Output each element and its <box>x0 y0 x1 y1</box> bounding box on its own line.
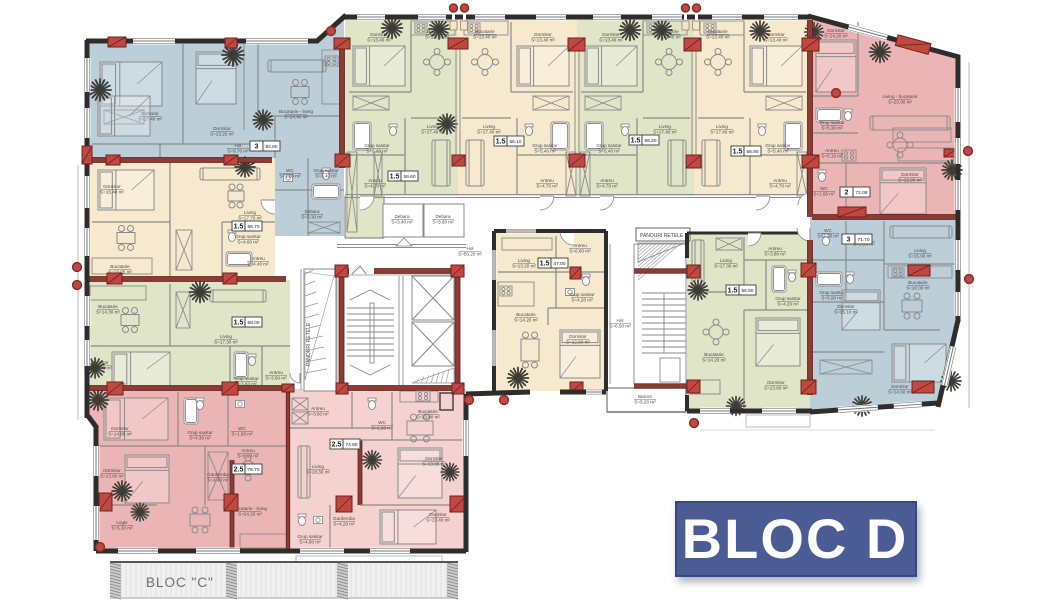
svg-text:Bucatarie - living: Bucatarie - living <box>279 109 313 114</box>
svg-text:S=6.80 m²: S=6.80 m² <box>569 249 591 254</box>
svg-text:S=14.20 m²: S=14.20 m² <box>514 318 538 323</box>
svg-text:56.20: 56.20 <box>644 138 656 144</box>
svg-text:S=14.20 m²: S=14.20 m² <box>824 34 848 39</box>
svg-text:S=1.90 m²: S=1.90 m² <box>231 432 253 437</box>
svg-text:S=4.70 m²: S=4.70 m² <box>596 184 618 189</box>
svg-text:S=17.30 m²: S=17.30 m² <box>714 264 738 269</box>
svg-text:Dormitor: Dormitor <box>767 32 785 37</box>
svg-text:Living - bucatarie: Living - bucatarie <box>883 94 918 99</box>
svg-text:1.5: 1.5 <box>733 149 743 156</box>
svg-text:Antreu: Antreu <box>600 178 614 183</box>
svg-text:S=13.40 m²: S=13.40 m² <box>599 38 623 43</box>
svg-text:Grup sanitar: Grup sanitar <box>765 143 791 148</box>
svg-text:Dormitor: Dormitor <box>569 334 587 339</box>
svg-text:Bucatarie: Bucatarie <box>98 304 118 309</box>
svg-text:Living: Living <box>720 258 732 263</box>
svg-text:Grup sanitar: Grup sanitar <box>819 290 845 295</box>
svg-text:S=5.40 m²: S=5.40 m² <box>534 149 556 154</box>
svg-text:S=5.40 m²: S=5.40 m² <box>366 149 388 154</box>
svg-text:Bucatarie: Bucatarie <box>475 29 495 34</box>
svg-text:S=3.60 m²: S=3.60 m² <box>265 376 287 381</box>
svg-text:S=12.50 m²: S=12.50 m² <box>566 340 590 345</box>
svg-text:S=4.60 m²: S=4.60 m² <box>237 240 259 245</box>
svg-text:S=5.40 m²: S=5.40 m² <box>598 149 620 154</box>
svg-text:Debara: Debara <box>394 214 410 219</box>
svg-text:Grup sanitar: Grup sanitar <box>297 534 323 539</box>
svg-text:S=1.60 m²: S=1.60 m² <box>813 192 835 197</box>
svg-text:S=13.40 m²: S=13.40 m² <box>367 38 391 43</box>
svg-text:S=6.50 m²: S=6.50 m² <box>609 324 631 329</box>
svg-text:Dormitor: Dormitor <box>213 126 231 131</box>
svg-text:Antreu: Antreu <box>251 256 265 261</box>
svg-text:S=4.40 m²: S=4.40 m² <box>247 262 269 267</box>
svg-text:1.5: 1.5 <box>496 139 506 146</box>
svg-text:Dormitor: Dormitor <box>111 426 129 431</box>
svg-text:S=13.80 m²: S=13.80 m² <box>422 462 446 467</box>
svg-text:Garderoba: Garderoba <box>333 516 355 521</box>
svg-text:S=3.40 m²: S=3.40 m² <box>391 220 413 225</box>
svg-text:Grup sanitar: Grup sanitar <box>233 376 259 381</box>
svg-text:1.5: 1.5 <box>234 320 244 327</box>
svg-text:Hol: Hol <box>467 246 474 251</box>
svg-text:S=18.30 m²: S=18.30 m² <box>306 470 330 475</box>
svg-text:Bucatarie: Bucatarie <box>908 280 928 285</box>
svg-text:2: 2 <box>845 190 849 197</box>
svg-text:Bucatarie: Bucatarie <box>418 409 438 414</box>
svg-text:S=13.40 m²: S=13.40 m² <box>531 38 555 43</box>
svg-text:Dormitor: Dormitor <box>602 32 620 37</box>
svg-text:Dormitor: Dormitor <box>103 468 121 473</box>
svg-text:Living: Living <box>483 124 495 129</box>
svg-text:47.00: 47.00 <box>553 261 565 267</box>
svg-text:3: 3 <box>255 144 259 151</box>
svg-text:56.90: 56.90 <box>746 149 758 155</box>
svg-text:S=4.30 m²: S=4.30 m² <box>189 436 211 441</box>
svg-text:Hol: Hol <box>235 143 242 148</box>
svg-text:Grup sanitar: Grup sanitar <box>187 430 213 435</box>
svg-text:S=56.20 m²: S=56.20 m² <box>458 252 482 257</box>
svg-text:S=4.40 m²: S=4.40 m² <box>207 478 229 483</box>
svg-text:S=15.90 m²: S=15.90 m² <box>908 254 932 259</box>
svg-text:Debara: Debara <box>435 214 451 219</box>
svg-text:Grup sanitar: Grup sanitar <box>532 143 558 148</box>
svg-text:Antreu: Antreu <box>768 246 782 251</box>
svg-text:S=17.30 m²: S=17.30 m² <box>214 340 238 345</box>
svg-text:Dormitor: Dormitor <box>103 184 121 189</box>
svg-text:S=3.80 m²: S=3.80 m² <box>307 412 329 417</box>
svg-text:1.5: 1.5 <box>631 138 641 145</box>
svg-text:S=5.30 m²: S=5.30 m² <box>111 526 133 531</box>
svg-text:S=13.60 m²: S=13.60 m² <box>764 386 788 391</box>
svg-text:S=2.20 m²: S=2.20 m² <box>817 234 839 239</box>
svg-text:Living: Living <box>716 124 728 129</box>
svg-text:Balcon: Balcon <box>638 394 652 399</box>
svg-text:92.80: 92.80 <box>265 144 277 150</box>
svg-text:Grup sanitar: Grup sanitar <box>775 296 801 301</box>
svg-text:S=13.40 m²: S=13.40 m² <box>706 35 730 40</box>
svg-text:S=14.80 m²: S=14.80 m² <box>108 432 132 437</box>
svg-text:WC: WC <box>378 420 386 425</box>
svg-text:S=5.10 m²: S=5.10 m² <box>821 154 843 159</box>
svg-text:S=20.90 m²: S=20.90 m² <box>888 100 912 105</box>
svg-text:BLOC "C": BLOC "C" <box>146 575 214 590</box>
svg-text:S=3.30 m²: S=3.30 m² <box>301 215 323 220</box>
svg-text:71.70: 71.70 <box>857 237 869 243</box>
svg-text:S=14.20 m²: S=14.20 m² <box>702 358 726 363</box>
svg-text:Dormitor: Dormitor <box>901 172 919 177</box>
svg-text:S=5.40 m²: S=5.40 m² <box>767 149 789 154</box>
svg-text:Grup sanitar: Grup sanitar <box>364 143 390 148</box>
svg-text:S=24.40 m²: S=24.40 m² <box>284 115 308 120</box>
svg-text:S=4.80 m²: S=4.80 m² <box>299 540 321 545</box>
svg-text:S=15.10 m²: S=15.10 m² <box>834 310 858 315</box>
svg-text:S=4.20 m²: S=4.20 m² <box>571 298 593 303</box>
svg-text:Grup sanitar: Grup sanitar <box>569 292 595 297</box>
svg-text:S=4.20 m²: S=4.20 m² <box>777 302 799 307</box>
svg-text:Antreu: Antreu <box>773 178 787 183</box>
svg-text:S=24.20 m²: S=24.20 m² <box>238 512 262 517</box>
svg-text:Dormitor: Dormitor <box>891 384 909 389</box>
svg-text:WC: WC <box>238 426 246 431</box>
svg-text:56.10: 56.10 <box>509 139 521 145</box>
svg-text:S=4.70 m²: S=4.70 m² <box>536 184 558 189</box>
svg-text:Antreu: Antreu <box>825 148 839 153</box>
svg-text:Bucatarie: Bucatarie <box>704 352 724 357</box>
svg-text:S=5.20 m²: S=5.20 m² <box>634 400 656 405</box>
svg-text:S=13.90 m²: S=13.90 m² <box>898 178 922 183</box>
svg-text:S=13.60 m²: S=13.60 m² <box>100 474 124 479</box>
svg-text:Garderoba: Garderoba <box>207 472 229 477</box>
svg-text:S=4.20 m²: S=4.20 m² <box>333 522 355 527</box>
svg-text:Living: Living <box>914 248 926 253</box>
svg-text:S=1.80 m²: S=1.80 m² <box>279 174 301 179</box>
svg-text:74.80: 74.80 <box>345 442 357 448</box>
svg-text:Grup sanitar: Grup sanitar <box>819 120 845 125</box>
svg-text:58.00: 58.00 <box>247 320 259 326</box>
svg-text:56.50: 56.50 <box>741 288 753 294</box>
svg-text:S=1.60 m²: S=1.60 m² <box>371 426 393 431</box>
svg-text:S=3.80 m²: S=3.80 m² <box>764 252 786 257</box>
svg-text:Bucatarie: Bucatarie <box>110 264 130 269</box>
svg-text:Living: Living <box>518 258 530 263</box>
svg-text:S=13.90 m²: S=13.90 m² <box>416 415 440 420</box>
svg-text:Hol: Hol <box>617 318 624 323</box>
svg-text:S=17.40 m²: S=17.40 m² <box>710 130 734 135</box>
svg-text:1.5: 1.5 <box>390 174 400 181</box>
svg-text:S=14.60 m²: S=14.60 m² <box>888 390 912 395</box>
svg-text:Dormitor: Dormitor <box>534 32 552 37</box>
svg-text:S=15.40 m²: S=15.40 m² <box>100 190 124 195</box>
svg-text:1.5: 1.5 <box>540 261 550 268</box>
svg-text:WC: WC <box>286 168 294 173</box>
svg-text:WC: WC <box>820 186 828 191</box>
svg-text:76.70: 76.70 <box>247 467 259 473</box>
svg-text:Antreu: Antreu <box>540 178 554 183</box>
svg-text:Living: Living <box>659 124 671 129</box>
svg-text:Dormitor: Dormitor <box>827 28 845 33</box>
svg-text:2.5: 2.5 <box>234 467 244 474</box>
svg-text:S=4.70 m²: S=4.70 m² <box>769 184 791 189</box>
svg-text:S=5.90 m²: S=5.90 m² <box>821 296 843 301</box>
svg-text:1.5: 1.5 <box>234 224 244 231</box>
svg-text:S=17.40 m²: S=17.40 m² <box>477 130 501 135</box>
svg-text:Living: Living <box>312 464 324 469</box>
svg-text:Debara: Debara <box>304 209 320 214</box>
svg-text:Dormitor: Dormitor <box>767 380 785 385</box>
svg-text:Bucatarie: Bucatarie <box>708 29 728 34</box>
svg-text:S=6.00 m²: S=6.00 m² <box>237 454 259 459</box>
svg-text:S=17.40 m²: S=17.40 m² <box>653 130 677 135</box>
svg-text:Antreu: Antreu <box>368 178 382 183</box>
svg-text:56.70: 56.70 <box>247 224 259 230</box>
svg-text:Living: Living <box>220 334 232 339</box>
svg-text:S=10.00 m²: S=10.00 m² <box>906 286 930 291</box>
svg-text:1.5: 1.5 <box>728 288 738 295</box>
svg-text:BLOC D: BLOC D <box>682 507 909 570</box>
svg-text:Antreu: Antreu <box>269 370 283 375</box>
svg-text:S=17.70 m²: S=17.70 m² <box>238 216 262 221</box>
svg-text:PANOURI RETELE: PANOURI RETELE <box>640 233 684 239</box>
svg-text:S=3.60 m²: S=3.60 m² <box>432 220 454 225</box>
svg-text:S=13.20 m²: S=13.20 m² <box>210 132 234 137</box>
svg-text:Bucatarie: Bucatarie <box>516 312 536 317</box>
svg-text:2.5: 2.5 <box>332 442 342 449</box>
svg-text:Grup sanitar: Grup sanitar <box>313 168 339 173</box>
svg-text:Dormitor: Dormitor <box>425 456 443 461</box>
svg-text:Dormitor: Dormitor <box>429 512 447 517</box>
svg-text:Antreu: Antreu <box>573 243 587 248</box>
svg-text:Logie: Logie <box>116 520 128 525</box>
svg-text:S=5.30 m²: S=5.30 m² <box>821 126 843 131</box>
svg-text:WC: WC <box>824 228 832 233</box>
svg-text:Dormitor: Dormitor <box>837 304 855 309</box>
svg-text:Antreu: Antreu <box>311 406 325 411</box>
svg-text:S=9.70 m²: S=9.70 m² <box>227 149 249 154</box>
svg-text:S=3.40 m²: S=3.40 m² <box>315 174 337 179</box>
svg-text:Antreu: Antreu <box>241 448 255 453</box>
svg-text:Grup sanitar: Grup sanitar <box>596 143 622 148</box>
svg-text:Living: Living <box>244 210 256 215</box>
svg-text:S=13.40 m²: S=13.40 m² <box>473 35 497 40</box>
svg-text:S=13.40 m²: S=13.40 m² <box>426 518 450 523</box>
svg-text:72.08: 72.08 <box>855 190 867 196</box>
svg-text:S=14.30 m²: S=14.30 m² <box>96 310 120 315</box>
svg-text:3: 3 <box>847 237 851 244</box>
svg-text:Grup sanitar: Grup sanitar <box>235 234 261 239</box>
svg-text:59.60: 59.60 <box>403 174 415 180</box>
svg-text:S=13.20 m²: S=13.20 m² <box>512 264 536 269</box>
